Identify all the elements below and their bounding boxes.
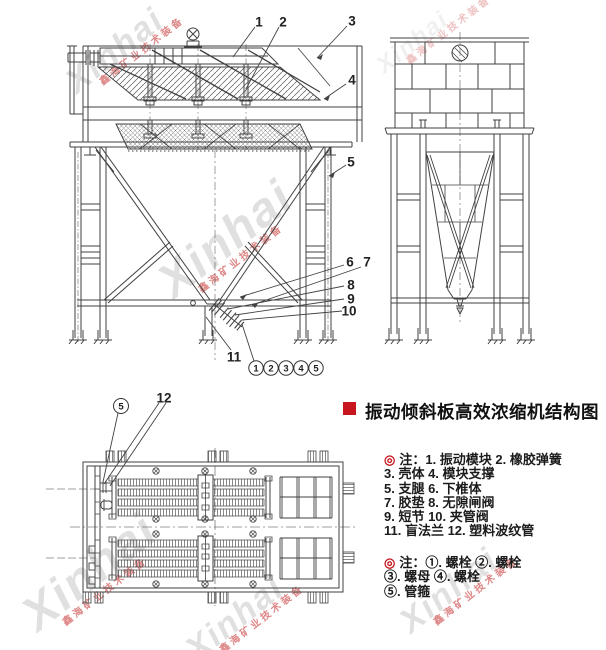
callout-5: 5 xyxy=(347,155,355,170)
plan-right-connectors xyxy=(343,483,354,563)
plan-callout-5: 5 xyxy=(118,402,124,413)
note-text: 注：1. 振动模块 2. 橡胶弹簧 xyxy=(399,452,562,467)
note-line: ③. 螺母 ④. 螺栓 xyxy=(384,570,602,584)
drawing-title: 振动倾斜板高效浓缩机结构图 xyxy=(365,399,599,424)
structure-drawing: 1 2 3 4 5 6 7 8 9 10 11 1 2 3 4 5 5 12 xyxy=(0,0,606,650)
callout-10: 10 xyxy=(341,304,356,319)
callout-2: 2 xyxy=(279,15,287,30)
circled-callout-4: 4 xyxy=(298,364,304,375)
front-view xyxy=(67,28,362,360)
parts-note: ◎注：1. 振动模块 2. 橡胶弹簧 3. 壳体 4. 模块支撑 5. 支腿 6… xyxy=(384,453,602,539)
side-feet xyxy=(385,328,535,344)
note-line: ◎注：①. 螺栓 ②. 螺栓 xyxy=(384,556,602,570)
note-line: 7. 胶垫 8. 无隙闸阀 xyxy=(384,496,602,510)
callout-11: 11 xyxy=(227,350,242,365)
plan-callout-12: 12 xyxy=(156,391,171,406)
inclined-plate-module xyxy=(98,50,320,100)
plan-module-row-1 xyxy=(109,475,272,520)
callout-8: 8 xyxy=(347,278,355,293)
plan-view xyxy=(46,448,356,606)
note-line: 3. 壳体 4. 模块支撑 xyxy=(384,467,602,481)
note-bullseye-icon: ◎ xyxy=(384,452,395,467)
note-text: 注：①. 螺栓 ②. 螺栓 xyxy=(399,555,521,570)
vibration-motor xyxy=(184,28,202,47)
callout-4: 4 xyxy=(348,73,356,88)
support-legs xyxy=(75,147,331,342)
side-tank-box xyxy=(390,38,529,128)
fasteners-note: ◎注：①. 螺栓 ②. 螺栓 ③. 螺母 ④. 螺栓 ⑤. 管箍 xyxy=(384,556,602,599)
callout-6: 6 xyxy=(346,255,354,270)
note-line: ⑤. 管箍 xyxy=(384,585,602,599)
circled-callout-3: 3 xyxy=(283,364,288,375)
side-view xyxy=(385,32,535,344)
title-block: 振动倾斜板高效浓缩机结构图 xyxy=(343,399,599,424)
title-red-square-icon xyxy=(343,402,356,415)
technical-drawing-page: Xinhai 鑫海矿业技术装备 Xinhai 鑫海矿业技术装备 Xinhai 鑫… xyxy=(0,0,606,650)
callout-7: 7 xyxy=(363,255,371,270)
circled-callout-1: 1 xyxy=(253,364,259,375)
inlet-pipe xyxy=(68,50,100,65)
callout-3: 3 xyxy=(348,14,356,29)
plan-centerlines xyxy=(46,448,356,606)
note-line: 11. 盲法兰 12. 塑料波纹管 xyxy=(384,524,602,538)
note-line: ◎注：1. 振动模块 2. 橡胶弹簧 xyxy=(384,453,602,467)
circled-callout-2: 2 xyxy=(268,364,273,375)
callout-1: 1 xyxy=(255,15,263,30)
side-skirt-plate xyxy=(385,120,534,134)
circled-callout-5: 5 xyxy=(313,364,319,375)
plan-walkway-grid xyxy=(280,477,332,579)
note-bullseye-icon: ◎ xyxy=(384,555,395,570)
note-line: 5. 支腿 6. 下椎体 xyxy=(384,482,602,496)
plan-module-row-2 xyxy=(109,536,272,581)
leg-feet xyxy=(69,330,337,344)
note-line: 9. 短节 10. 夹管阀 xyxy=(384,510,602,524)
